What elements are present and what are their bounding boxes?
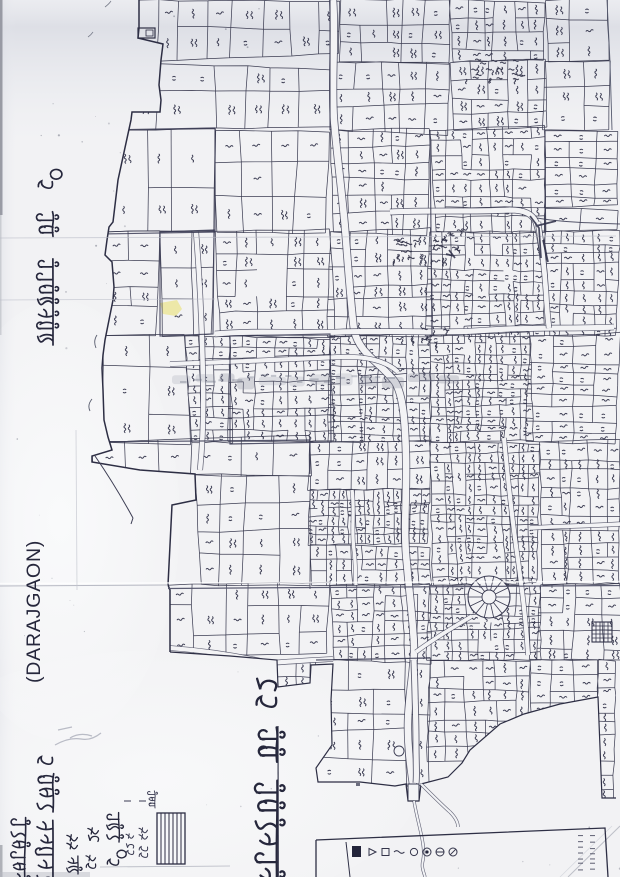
svg-text:(DARAJGAON): (DARAJGAON) <box>23 540 45 683</box>
